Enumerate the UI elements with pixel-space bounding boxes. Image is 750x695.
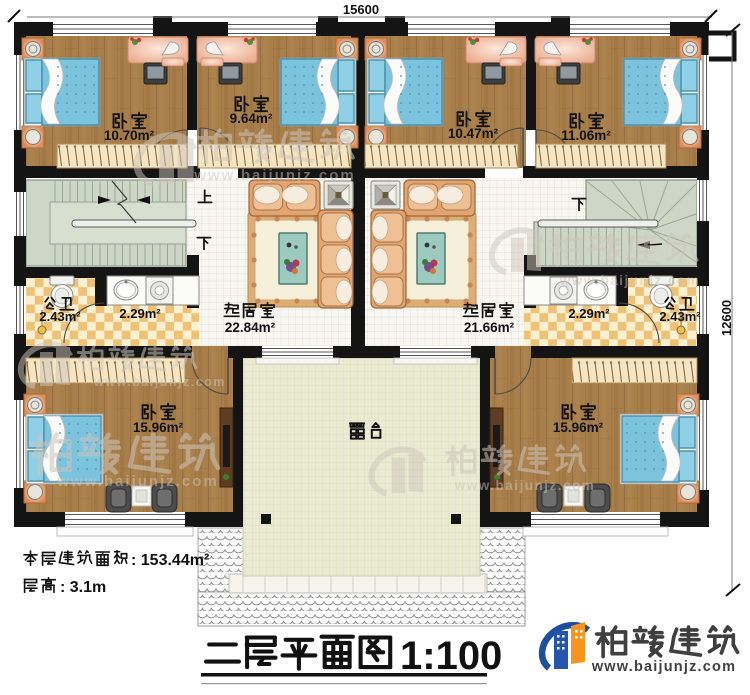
svg-text:15.96m²: 15.96m² — [553, 420, 604, 435]
svg-text:2.43m²: 2.43m² — [659, 309, 701, 324]
svg-text:12600: 12600 — [719, 300, 734, 336]
svg-text:www.baijunjz.com: www.baijunjz.com — [559, 273, 701, 288]
svg-text:: 153.44m²: : 153.44m² — [131, 552, 209, 569]
svg-text:15600: 15600 — [343, 2, 379, 17]
svg-text:10.70m²: 10.70m² — [104, 128, 155, 143]
svg-text:2.29m²: 2.29m² — [119, 306, 161, 321]
svg-text:9.64m²: 9.64m² — [230, 111, 273, 126]
svg-text:11.06m²: 11.06m² — [561, 128, 611, 143]
svg-text:www.baijunjz.com: www.baijunjz.com — [193, 167, 355, 184]
svg-text:www.baijunjz.com: www.baijunjz.com — [591, 659, 736, 675]
svg-text:2.29m²: 2.29m² — [568, 306, 610, 321]
svg-text:www.baijunjz.com: www.baijunjz.com — [454, 478, 596, 493]
svg-text:15.96m²: 15.96m² — [133, 420, 184, 435]
svg-text:1:100: 1:100 — [400, 634, 502, 678]
svg-text:2.43m²: 2.43m² — [39, 309, 81, 324]
svg-text:www.baijunjz.com: www.baijunjz.com — [56, 473, 218, 490]
svg-text:22.84m²: 22.84m² — [225, 320, 276, 335]
svg-text:: 3.1m: : 3.1m — [60, 579, 106, 596]
svg-text:10.47m²: 10.47m² — [448, 126, 499, 141]
svg-text:www.baijunjz.com: www.baijunjz.com — [93, 375, 226, 389]
svg-text:21.66m²: 21.66m² — [464, 320, 515, 335]
